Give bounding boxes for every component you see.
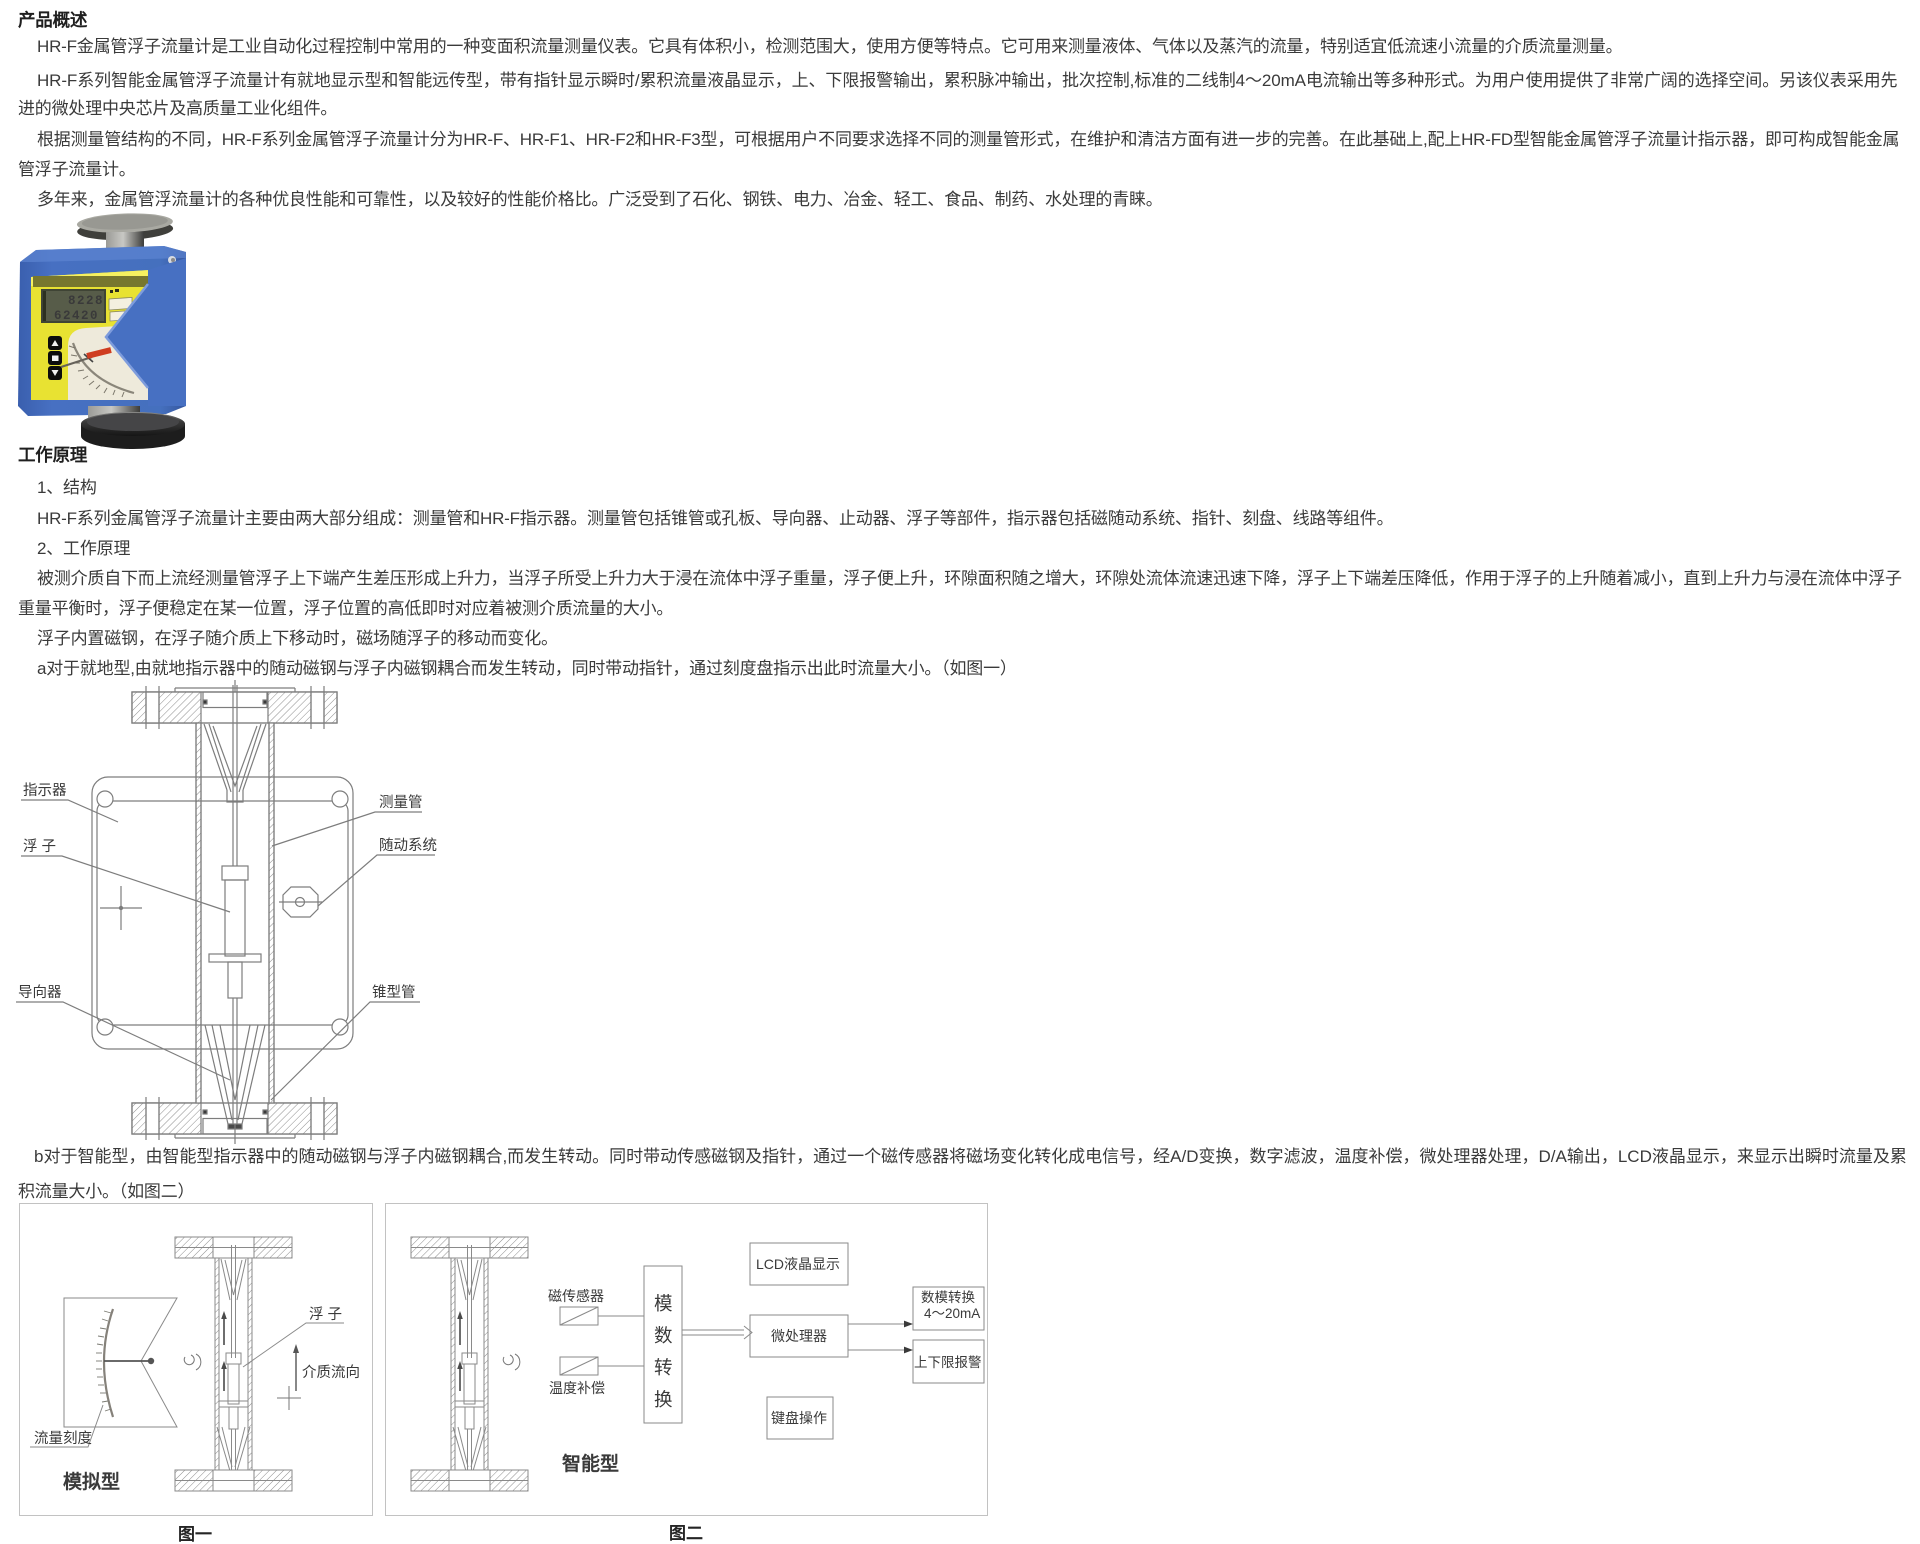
svg-text:4～20mA: 4～20mA <box>924 1306 980 1321</box>
svg-text:换: 换 <box>654 1389 673 1410</box>
svg-text:磁传感器: 磁传感器 <box>548 1288 604 1304</box>
svg-text:数模转换: 数模转换 <box>921 1290 975 1305</box>
svg-text:温度补偿: 温度补偿 <box>549 1380 605 1396</box>
svg-text:LCD液晶显示: LCD液晶显示 <box>756 1256 840 1272</box>
svg-text:8228: 8228 <box>68 294 104 308</box>
svg-text:指示器: 指示器 <box>23 782 67 799</box>
svg-text:随动系统: 随动系统 <box>379 837 437 854</box>
svg-text:数: 数 <box>654 1325 673 1346</box>
svg-text:浮 子: 浮 子 <box>309 1306 342 1323</box>
svg-text:键盘操作: 键盘操作 <box>771 1410 827 1426</box>
svg-text:导向器: 导向器 <box>18 984 62 1001</box>
svg-text:智能型: 智能型 <box>562 1452 619 1475</box>
svg-text:测量管: 测量管 <box>379 794 423 811</box>
svg-text:浮 子: 浮 子 <box>23 838 56 855</box>
svg-text:流量刻度: 流量刻度 <box>34 1430 92 1447</box>
svg-text:微处理器: 微处理器 <box>771 1328 827 1344</box>
svg-text:模拟型: 模拟型 <box>63 1470 120 1493</box>
svg-text:转: 转 <box>654 1357 673 1378</box>
svg-text:62420: 62420 <box>54 309 99 323</box>
svg-text:上下限报警: 上下限报警 <box>914 1355 982 1370</box>
svg-text:介质流向: 介质流向 <box>302 1364 360 1381</box>
svg-text:模: 模 <box>654 1293 673 1314</box>
svg-text:锥型管: 锥型管 <box>372 984 416 1001</box>
